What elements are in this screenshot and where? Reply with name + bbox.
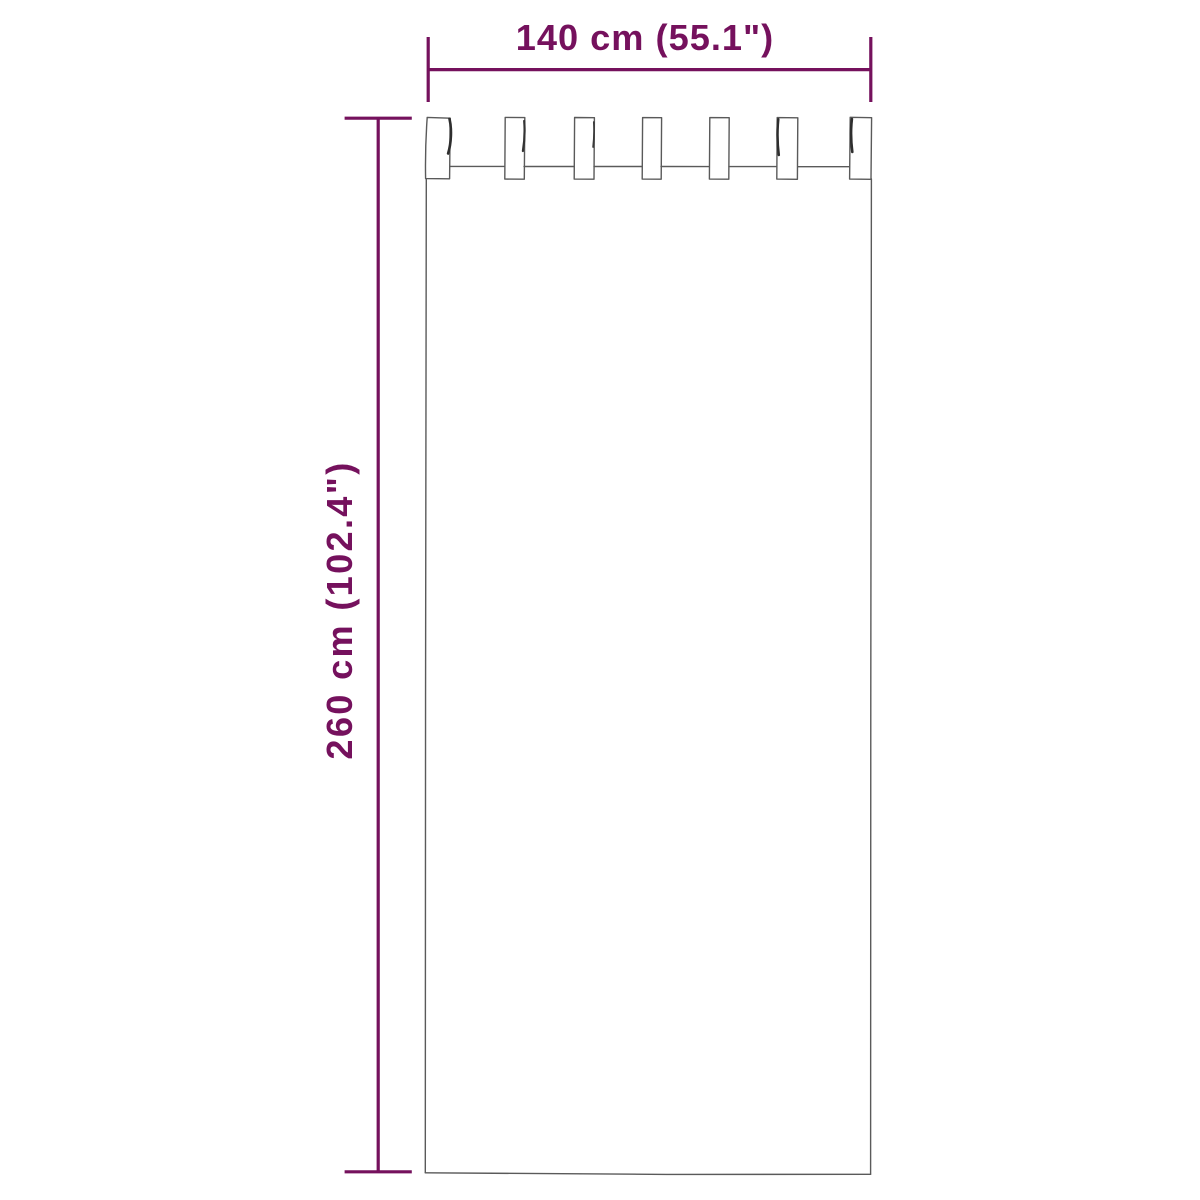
svg-text:260 cm (102.4"): 260 cm (102.4") [319, 460, 360, 759]
svg-text:140 cm (55.1"): 140 cm (55.1") [516, 17, 774, 58]
